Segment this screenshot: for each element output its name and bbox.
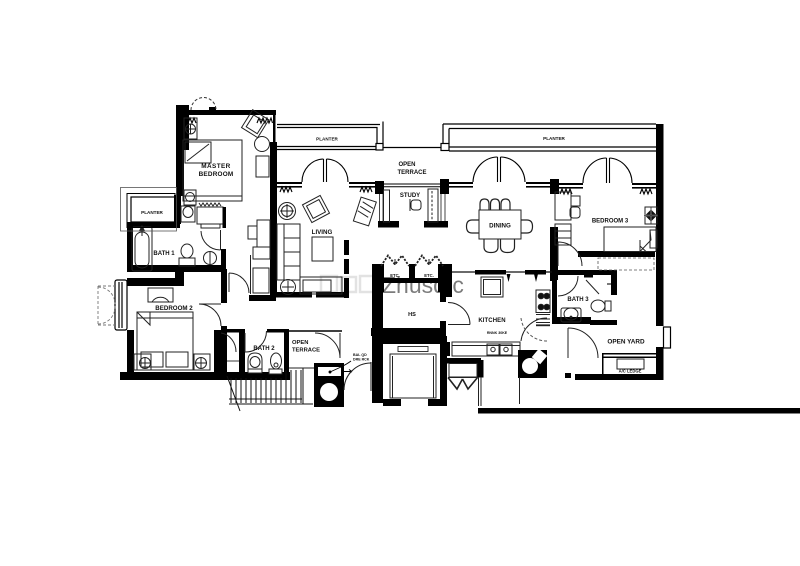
svg-text:DINING: DINING <box>489 223 511 230</box>
svg-text:BEDROOM: BEDROOM <box>199 171 234 178</box>
svg-text:A/C LEDGE: A/C LEDGE <box>619 369 642 374</box>
svg-text:OPEN YARD: OPEN YARD <box>607 339 645 346</box>
svg-text:BEDROOM 3: BEDROOM 3 <box>592 219 629 225</box>
svg-text:RNNK 30KE: RNNK 30KE <box>487 331 508 335</box>
svg-text:BATH 3: BATH 3 <box>567 297 589 303</box>
svg-text:LIVING: LIVING <box>312 229 333 236</box>
svg-text:TERRACE: TERRACE <box>397 170 426 176</box>
svg-text:OPEN: OPEN <box>292 340 308 346</box>
svg-text:PLANTER: PLANTER <box>141 210 163 215</box>
svg-text:BAL QD: BAL QD <box>353 353 367 357</box>
svg-text:PLANTER: PLANTER <box>543 136 565 141</box>
svg-text:OPEN: OPEN <box>398 162 415 168</box>
svg-text:BATH 1: BATH 1 <box>153 251 175 257</box>
svg-text:KITCHEN: KITCHEN <box>478 318 505 324</box>
svg-text:DRE RCK: DRE RCK <box>353 358 370 362</box>
svg-text:ETC.: ETC. <box>390 273 400 278</box>
svg-text:STUDY: STUDY <box>400 193 420 199</box>
svg-text:MASTER: MASTER <box>201 163 230 170</box>
svg-text:TERRACE: TERRACE <box>292 348 320 354</box>
svg-text:BATH 2: BATH 2 <box>253 346 275 352</box>
svg-text:BEDROOM 2: BEDROOM 2 <box>155 305 193 312</box>
svg-text:PLANTER: PLANTER <box>316 137 338 142</box>
svg-text:HS: HS <box>408 312 416 318</box>
svg-text:ETC.: ETC. <box>424 273 434 278</box>
